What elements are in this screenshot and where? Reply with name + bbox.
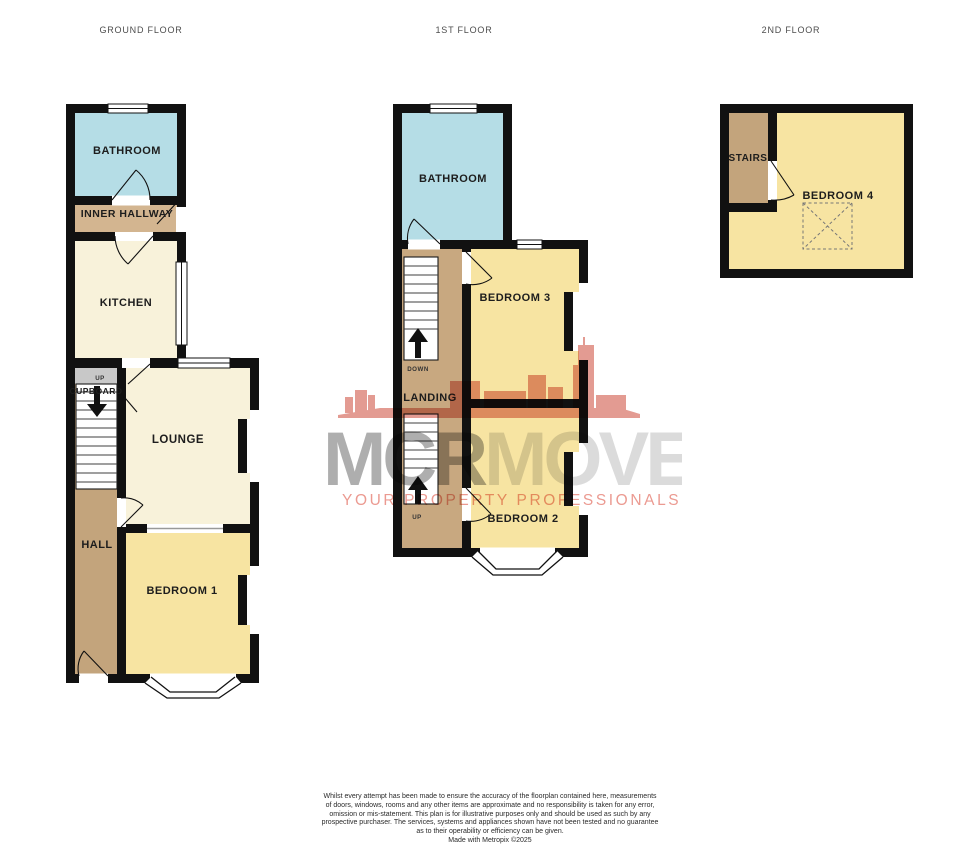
label-bedroom3: BEDROOM 3 [479,292,550,304]
label-stairs-2f: STAIRS [729,153,768,164]
disclaimer-line: of doors, windows, rooms and any other i… [322,802,659,811]
disclaimer-line: Whilst every attempt has been made to en… [322,793,659,802]
wall-stairs-bottom [729,203,777,212]
disclaimer-line: prospective purchaser. The services, sys… [322,819,659,828]
label-bedroom2: BEDROOM 2 [487,513,558,525]
first-floor-plan: BATHROOM BEDROOM 3 DOWN LANDING UP BEDRO… [393,104,588,575]
label-hall: HALL [81,539,112,551]
disclaimer: Whilst every attempt has been made to en… [322,793,659,846]
label-lounge: LOUNGE [152,434,204,446]
label-kitchen: KITCHEN [100,297,152,309]
label-bedroom4: BEDROOM 4 [802,190,874,202]
window-bedroom3 [517,240,542,249]
room-bedroom3 [471,249,579,399]
ground-floor-plan: BATHROOM INNER HALLWAY KITCHEN UP CUPBOA… [66,104,259,698]
label-cupboard-up: UP [95,375,105,382]
stairs-down-1f [404,257,438,360]
window-lounge [178,358,230,368]
label-cupboard: CUPBOARD [69,386,122,396]
label-bathroom-1f: BATHROOM [419,173,487,185]
label-inner-hallway: INNER HALLWAY [81,208,173,220]
stairs-up-1f [404,414,438,504]
label-up: UP [412,514,422,521]
label-bedroom1: BEDROOM 1 [146,585,217,597]
floorplan-drawing: BATHROOM INNER HALLWAY KITCHEN UP CUPBOA… [0,0,980,846]
label-landing: LANDING [403,392,457,404]
bay-window-bedroom1 [145,674,241,699]
disclaimer-line: as to their operability or efficiency ca… [322,828,659,837]
second-floor-plan: STAIRS BEDROOM 4 [720,104,913,278]
label-bathroom-gf: BATHROOM [93,145,161,157]
bay-window-bedroom2 [472,548,563,576]
floorplan-canvas: GROUND FLOOR 1ST FLOOR 2ND FLOOR [0,0,980,846]
made-with-credit: Made with Metropix ©2025 [322,837,659,846]
room-bedroom2 [471,408,579,548]
room-lounge [126,368,250,524]
room-bedroom1 [126,533,250,674]
window-bathroom-1f [430,104,477,113]
label-down: DOWN [407,366,429,373]
stairs-ground-floor [76,384,117,489]
window-bathroom-gf [108,104,148,113]
disclaimer-line: omission or mis-statement. This plan is … [322,811,659,820]
window-kitchen [176,262,187,345]
